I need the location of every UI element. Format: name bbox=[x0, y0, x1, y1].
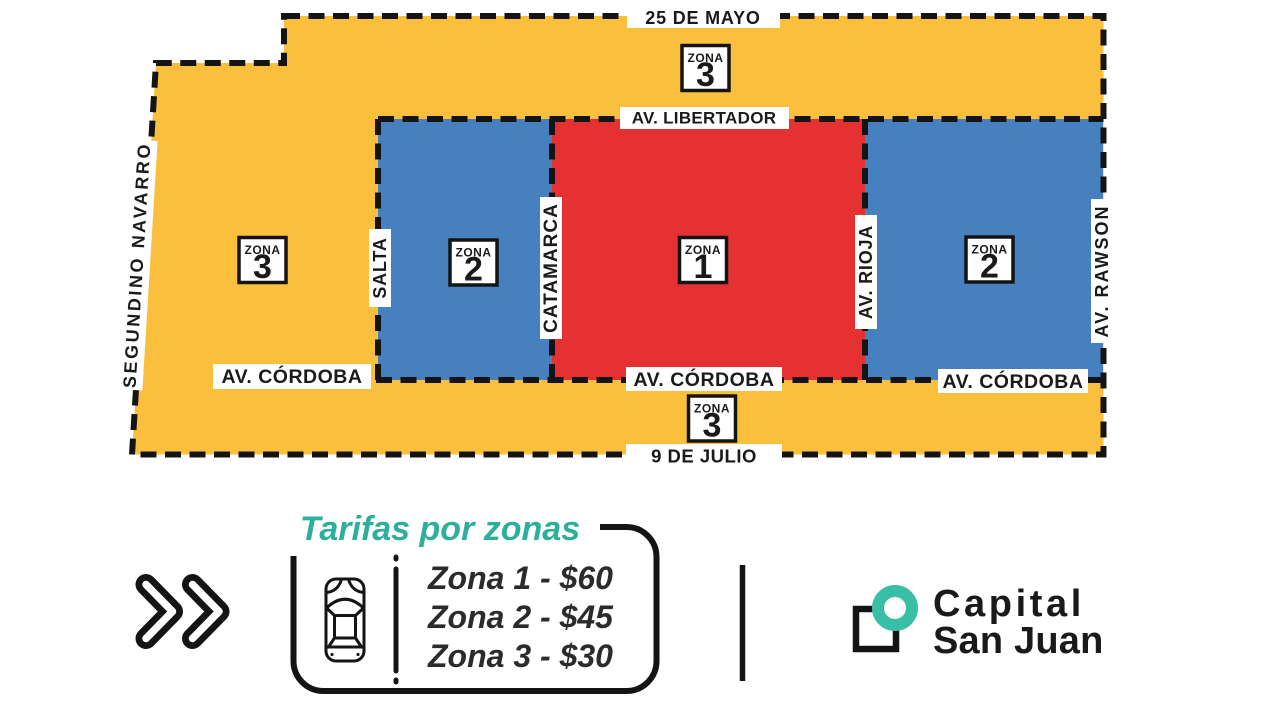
svg-text:2: 2 bbox=[980, 248, 999, 286]
svg-text:Zona 1 - $60: Zona 1 - $60 bbox=[427, 560, 613, 596]
svg-text:3: 3 bbox=[253, 248, 272, 286]
svg-text:AV. RAWSON: AV. RAWSON bbox=[1092, 204, 1112, 337]
svg-text:AV. CÓRDOBA: AV. CÓRDOBA bbox=[222, 364, 363, 388]
svg-text:Tarifas por zonas: Tarifas por zonas bbox=[300, 510, 580, 548]
svg-text:Zona 2 - $45: Zona 2 - $45 bbox=[427, 599, 614, 635]
svg-text:AV. RIOJA: AV. RIOJA bbox=[856, 225, 876, 319]
svg-text:2: 2 bbox=[464, 251, 483, 289]
svg-text:Capital: Capital bbox=[933, 583, 1085, 625]
svg-text:San Juan: San Juan bbox=[933, 620, 1104, 662]
svg-text:9 DE JULIO: 9 DE JULIO bbox=[651, 446, 757, 467]
svg-text:CATAMARCA: CATAMARCA bbox=[541, 203, 562, 333]
svg-text:AV. CÓRDOBA: AV. CÓRDOBA bbox=[634, 367, 775, 391]
svg-text:1: 1 bbox=[694, 248, 713, 286]
svg-text:3: 3 bbox=[696, 56, 715, 94]
svg-text:3: 3 bbox=[703, 407, 722, 445]
svg-text:AV. LIBERTADOR: AV. LIBERTADOR bbox=[632, 109, 777, 128]
svg-text:Zona 3 - $30: Zona 3 - $30 bbox=[427, 638, 613, 674]
svg-text:SALTA: SALTA bbox=[370, 237, 390, 298]
svg-text:25 DE MAYO: 25 DE MAYO bbox=[645, 8, 760, 28]
svg-text:AV. CÓRDOBA: AV. CÓRDOBA bbox=[943, 369, 1084, 393]
